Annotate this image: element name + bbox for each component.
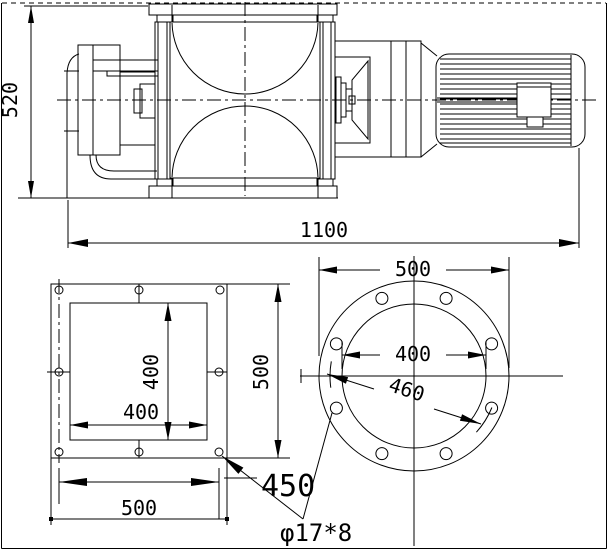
gearbox xyxy=(335,41,437,157)
dim-round-bore: 400 xyxy=(342,341,486,369)
dim-overall-height: 520 xyxy=(0,6,148,198)
front-view: 520 1100 xyxy=(0,0,598,252)
bearing-assembly xyxy=(64,45,158,198)
dim-opening-width: 400 xyxy=(70,400,207,429)
bearing-cover-profile xyxy=(67,54,79,198)
dim-400h-label: 400 xyxy=(123,400,159,424)
dim-400v-label: 400 xyxy=(139,354,163,390)
sheet-border xyxy=(2,3,607,549)
dim-400c-label: 400 xyxy=(395,342,431,366)
drawing-svg: 520 1100 400 xyxy=(0,0,608,550)
dim-bolt-spacing: 450 xyxy=(59,468,315,519)
hole-center-ticks xyxy=(47,284,227,458)
hole-spec-label: φ17*8 xyxy=(280,519,352,547)
engineering-drawing: 520 1100 400 xyxy=(0,0,608,550)
valve-top-flange xyxy=(149,4,337,22)
dim-flange-height: 500 xyxy=(227,284,290,458)
junction-box-tab xyxy=(527,117,543,127)
junction-box xyxy=(517,83,551,117)
dim-460-label: 460 xyxy=(386,372,428,406)
valve-bottom-flange xyxy=(18,178,338,198)
dim-500r-label: 500 xyxy=(249,354,273,390)
dim-flange-width: 500 xyxy=(49,458,229,525)
leader-from-round-hole xyxy=(303,413,332,519)
dim-500c-label: 500 xyxy=(395,257,431,281)
dim-450-label: 450 xyxy=(261,469,315,504)
dim-520-label: 520 xyxy=(0,82,22,118)
purge-pipe-outer xyxy=(96,155,157,171)
dim-1100-label: 1100 xyxy=(300,218,348,242)
round-flange-view: 500 400 460 xyxy=(300,256,563,546)
square-flange-view: 400 400 500 450 xyxy=(47,279,315,525)
dim-500b-label: 500 xyxy=(121,496,157,520)
dim-bolt-circle: 460 xyxy=(327,361,492,432)
